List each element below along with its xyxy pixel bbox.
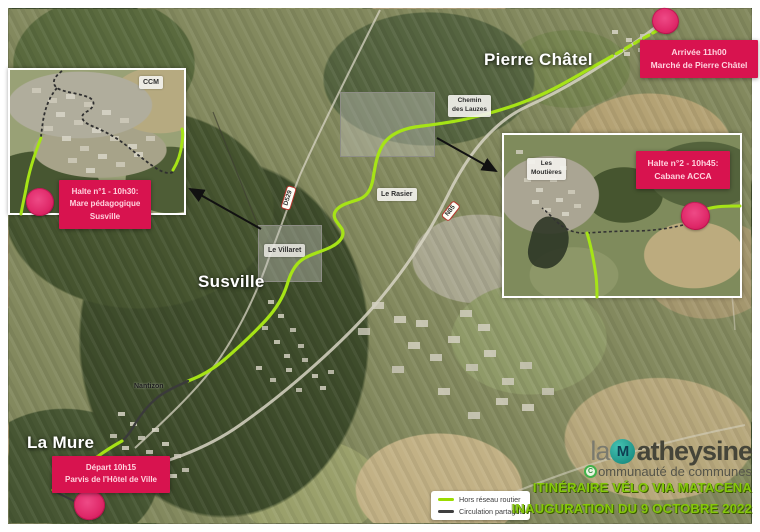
legend-swatch-green-line (438, 498, 454, 501)
stop-badge-halte1: Halte n°1 - 10h30: Mare pédagogique Susv… (59, 180, 151, 229)
hamlet-badge-le-rasier: Le Rasier (377, 188, 417, 201)
les-moutieres-buildings (516, 150, 523, 154)
map-screenshot: Pierre Châtel Susville La Mure Nantizon … (0, 0, 760, 532)
depart-line2: Parvis de l'Hôtel de Ville (65, 475, 157, 484)
matheysine-logo: la M atheysine C ommunauté de communes (584, 436, 752, 479)
halte1-line3: Susville (90, 212, 120, 221)
hamlet-badge-le-villaret: Le Villaret (264, 244, 305, 257)
hamlet-badge-ccm: CCM (139, 76, 163, 89)
hamlet-badge-chemin-des-lauzes: Chemin des Lauzes (448, 95, 491, 117)
legend-row-off-road: Hors réseau routier (438, 495, 523, 504)
moutieres-line1: Les (541, 160, 552, 167)
legend-row-shared: Circulation partagée (438, 507, 523, 516)
lake (524, 213, 573, 273)
halte2-line1: Halte n°2 - 10h45: (648, 158, 719, 168)
halte1-line1: Halte n°1 - 10h30: (72, 187, 139, 196)
communaute-c-icon: C (584, 465, 597, 478)
stop-badge-halte2: Halte n°2 - 10h45: Cabane ACCA (636, 151, 730, 189)
hamlet-label-nantizon: Nantizon (134, 383, 164, 390)
town-label-pierre-chatel: Pierre Châtel (484, 50, 593, 70)
chemin-line1: Chemin (458, 97, 482, 104)
town-label-la-mure: La Mure (27, 433, 94, 453)
stop-badge-depart: Départ 10h15 Parvis de l'Hôtel de Ville (52, 456, 170, 493)
event-title: ITINÉRAIRE VÉLO VIA MATACENA INAUGURATIO… (512, 478, 752, 520)
halte2-line2: Cabane ACCA (654, 171, 711, 181)
halte1-line2: Mare pédagogique (70, 199, 141, 208)
event-title-line2: INAUGURATION DU 9 OCTOBRE 2022 (512, 499, 752, 520)
hamlet-badge-les-moutieres: Les Moutières (527, 158, 566, 180)
chemin-line2: des Lauzes (452, 106, 487, 113)
stop-badge-arrivee: Arrivée 11h00 Marché de Pierre Châtel (640, 40, 758, 78)
town-label-susville: Susville (198, 272, 265, 292)
logo-name: atheysine (636, 436, 752, 467)
moutieres-line2: Moutières (531, 169, 562, 176)
ccm-site-buildings (32, 88, 41, 93)
la-mure-buildings (118, 412, 125, 416)
depart-line1: Départ 10h15 (86, 463, 136, 472)
logo-prefix: la (590, 436, 609, 467)
arrivee-line1: Arrivée 11h00 (671, 47, 726, 57)
pierre-chatel-buildings (612, 30, 618, 34)
industrial-zone-buildings (372, 302, 384, 309)
arrivee-line2: Marché de Pierre Châtel (651, 60, 748, 70)
event-title-line1: ITINÉRAIRE VÉLO VIA MATACENA (512, 478, 752, 499)
logo-tagline-text: ommunauté de communes (598, 464, 752, 479)
logo-wordmark: la M atheysine (590, 436, 752, 467)
legend-swatch-dark-line (438, 510, 454, 513)
susville-buildings (268, 300, 274, 304)
zoom-source-box-lauzes (340, 92, 435, 157)
logo-tagline: C ommunauté de communes (584, 464, 752, 479)
matheysine-monogram-icon: M (610, 439, 635, 464)
